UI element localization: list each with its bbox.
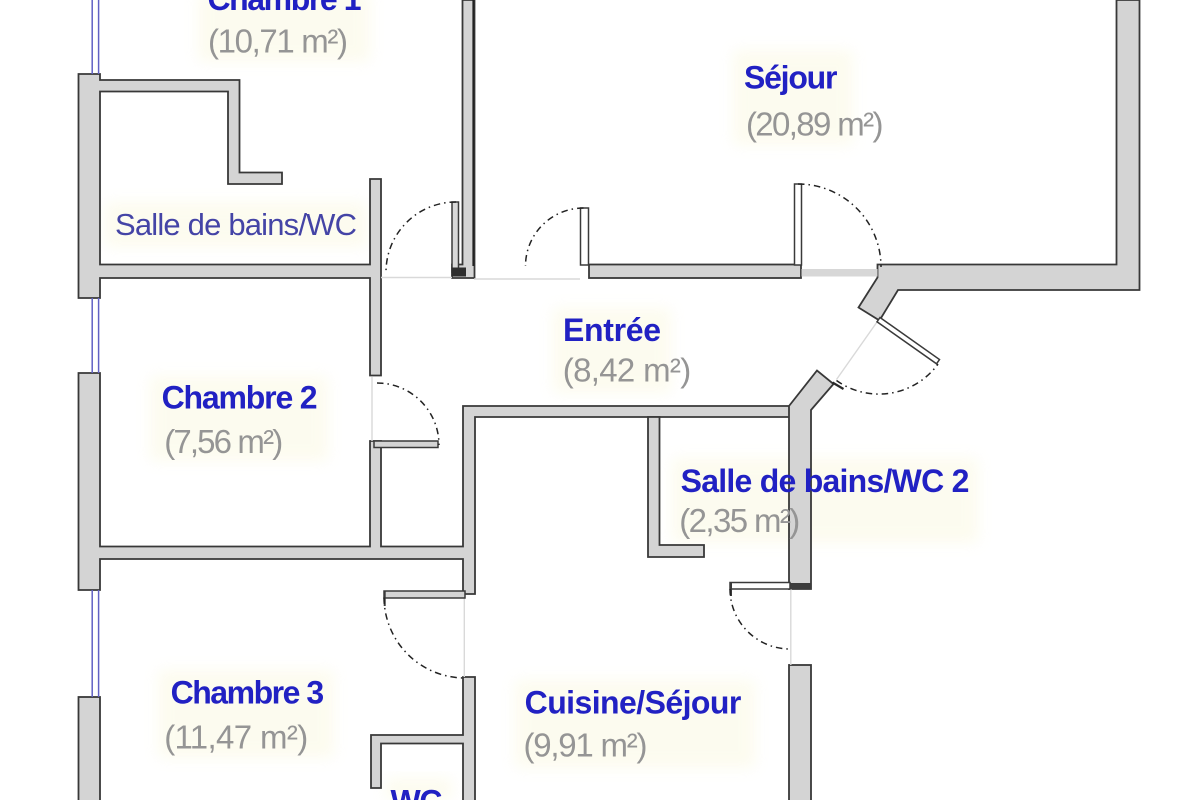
svg-text:(11,47 m²): (11,47 m²) <box>164 719 308 756</box>
svg-text:Chambre 2: Chambre 2 <box>162 379 318 415</box>
svg-text:(2,35 m²): (2,35 m²) <box>679 502 800 539</box>
svg-text:Entrée: Entrée <box>563 312 661 348</box>
svg-text:(20,89 m²): (20,89 m²) <box>746 106 884 143</box>
svg-text:Cuisine/Séjour: Cuisine/Séjour <box>525 685 742 721</box>
svg-text:Salle de bains/WC: Salle de bains/WC <box>115 207 357 242</box>
svg-text:Chambre 1: Chambre 1 <box>208 0 362 17</box>
svg-text:(9,91 m²): (9,91 m²) <box>524 726 648 763</box>
svg-text:(10,71 m²): (10,71 m²) <box>208 23 348 60</box>
svg-text:WC: WC <box>391 784 443 800</box>
svg-text:Chambre 3: Chambre 3 <box>171 675 325 711</box>
svg-text:(7,56 m²): (7,56 m²) <box>164 423 283 460</box>
svg-text:(8,42 m²): (8,42 m²) <box>563 352 692 389</box>
svg-text:Séjour: Séjour <box>744 60 838 96</box>
svg-text:Salle de bains/WC 2: Salle de bains/WC 2 <box>681 463 970 499</box>
